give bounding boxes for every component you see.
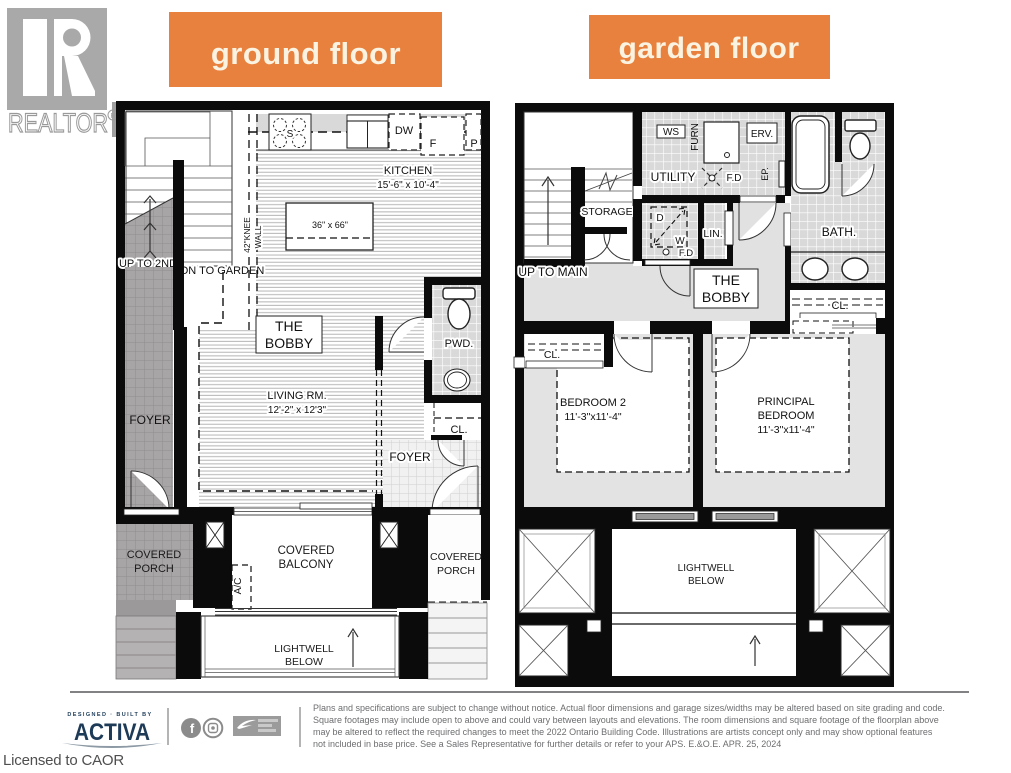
svg-text:BALCONY: BALCONY <box>279 559 334 571</box>
svg-text:A/C: A/C <box>233 578 244 595</box>
svg-text:R: R <box>110 113 115 120</box>
svg-text:P: P <box>470 138 477 150</box>
svg-text:CL.: CL. <box>544 349 560 361</box>
svg-text:ACTIVA: ACTIVA <box>74 719 150 746</box>
svg-text:may be altered to reflect the: may be altered to reflect the required c… <box>313 727 933 737</box>
svg-text:Licensed to CAOR: Licensed to CAOR <box>3 752 124 768</box>
svg-text:garden floor: garden floor <box>618 32 799 65</box>
svg-text:LIGHTWELL: LIGHTWELL <box>678 563 735 574</box>
svg-text:ground floor: ground floor <box>211 36 401 71</box>
svg-text:FURN: FURN <box>690 123 701 151</box>
svg-text:UTILITY: UTILITY <box>651 170 696 184</box>
svg-text:F.D: F.D <box>727 173 742 184</box>
svg-text:not included in base price. Se: not included in base price. See a Sales … <box>313 739 781 749</box>
svg-text:PORCH: PORCH <box>437 565 475 577</box>
svg-text:15'-6" x 10'-4": 15'-6" x 10'-4" <box>377 180 439 191</box>
svg-text:DESIGNED · BUILT BY: DESIGNED · BUILT BY <box>67 712 152 718</box>
svg-text:BOBBY: BOBBY <box>702 289 751 305</box>
svg-text:LIVING RM.: LIVING RM. <box>267 390 326 402</box>
svg-text:S: S <box>287 129 294 140</box>
svg-text:BELOW: BELOW <box>285 656 323 668</box>
svg-text:UP TO MAIN: UP TO MAIN <box>518 265 587 279</box>
svg-text:WALL: WALL <box>253 225 263 248</box>
svg-text:COVERED: COVERED <box>127 549 181 561</box>
svg-text:CL.: CL. <box>831 300 848 312</box>
svg-text:LIGHTWELL: LIGHTWELL <box>274 643 334 655</box>
svg-text:11'-3"x11'-4": 11'-3"x11'-4" <box>757 424 814 436</box>
svg-text:CL.: CL. <box>450 424 467 436</box>
svg-text:D: D <box>656 213 663 224</box>
svg-text:F: F <box>430 138 437 150</box>
svg-text:PORCH: PORCH <box>134 563 174 575</box>
svg-text:BELOW: BELOW <box>688 576 725 587</box>
svg-text:THE: THE <box>275 318 303 334</box>
svg-text:THE: THE <box>712 272 740 288</box>
svg-text:REALTOR: REALTOR <box>8 108 108 138</box>
svg-text:W: W <box>675 236 685 247</box>
svg-text:12'-2" x 12'3": 12'-2" x 12'3" <box>268 405 327 416</box>
svg-text:36" x 66": 36" x 66" <box>312 220 348 230</box>
svg-text:FOYER: FOYER <box>129 413 171 427</box>
svg-text:KITCHEN: KITCHEN <box>384 165 432 177</box>
svg-text:COVERED: COVERED <box>430 551 482 563</box>
svg-text:WS: WS <box>663 127 679 138</box>
svg-text:BEDROOM: BEDROOM <box>758 410 815 422</box>
svg-text:PWD.: PWD. <box>445 338 474 350</box>
svg-text:STORAGE: STORAGE <box>581 206 632 218</box>
svg-text:Plans and specifications are s: Plans and specifications are subject to … <box>313 703 945 713</box>
svg-text:Square footages may include op: Square footages may include open to abov… <box>313 715 939 725</box>
svg-text:ON TO GARDEN: ON TO GARDEN <box>180 265 265 277</box>
svg-text:f: f <box>190 721 195 736</box>
svg-text:ERV.: ERV. <box>751 129 773 140</box>
svg-text:PRINCIPAL: PRINCIPAL <box>757 396 814 408</box>
svg-text:11'-3"x11'-4": 11'-3"x11'-4" <box>564 411 621 423</box>
svg-text:EP.: EP. <box>760 167 770 180</box>
svg-text:BOBBY: BOBBY <box>265 335 314 351</box>
svg-text:LIN.: LIN. <box>703 228 722 240</box>
svg-text:FOYER: FOYER <box>389 450 431 464</box>
svg-text:DW: DW <box>395 125 414 137</box>
svg-text:COVERED: COVERED <box>278 545 335 557</box>
svg-text:42"KNEE: 42"KNEE <box>242 217 252 253</box>
svg-text:BEDROOM 2: BEDROOM 2 <box>560 397 626 409</box>
svg-text:BATH.: BATH. <box>822 225 856 239</box>
svg-text:F.D: F.D <box>679 248 693 259</box>
